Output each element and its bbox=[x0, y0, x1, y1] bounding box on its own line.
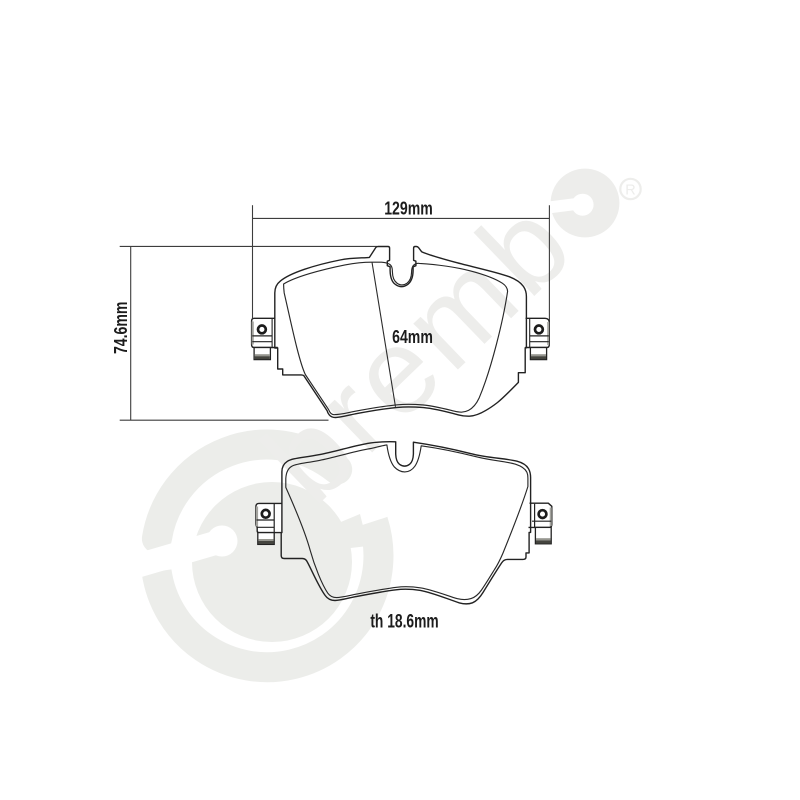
svg-text:74.6mm: 74.6mm bbox=[110, 302, 131, 355]
svg-text:th 18.6mm: th 18.6mm bbox=[370, 610, 438, 632]
svg-text:R: R bbox=[625, 183, 635, 199]
svg-text:64mm: 64mm bbox=[392, 326, 433, 347]
svg-text:129mm: 129mm bbox=[384, 198, 433, 219]
